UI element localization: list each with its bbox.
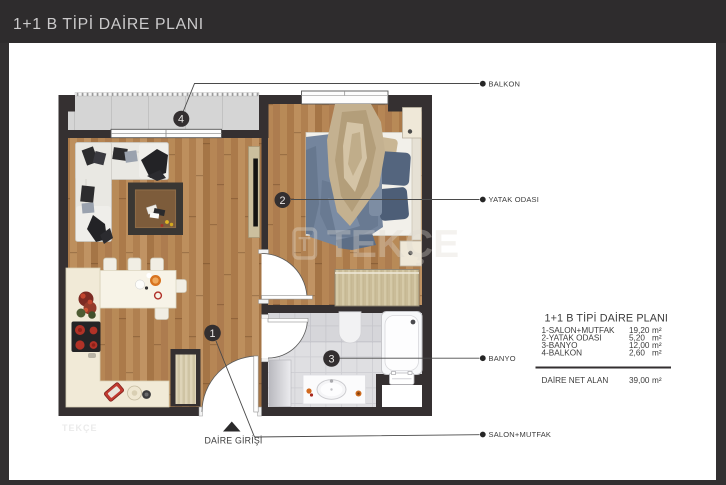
svg-text:T: T xyxy=(298,234,310,256)
svg-text:BALKON: BALKON xyxy=(489,80,521,89)
svg-text:1: 1 xyxy=(209,328,215,340)
svg-text:DAİRE NET ALAN: DAİRE NET ALAN xyxy=(542,375,609,385)
svg-text:DAİRE GİRİŞİ: DAİRE GİRİŞİ xyxy=(204,436,262,446)
svg-text:YATAK ODASI: YATAK ODASI xyxy=(489,195,540,204)
svg-text:1+1 B TİPİ DAİRE PLANI: 1+1 B TİPİ DAİRE PLANI xyxy=(545,312,669,325)
svg-text:m²: m² xyxy=(652,376,662,385)
svg-text:4: 4 xyxy=(178,114,184,126)
svg-text:BANYO: BANYO xyxy=(489,354,516,363)
svg-text:SALON+MUTFAK: SALON+MUTFAK xyxy=(489,430,552,439)
svg-text:4-BALKON: 4-BALKON xyxy=(542,349,583,358)
svg-text:3: 3 xyxy=(328,354,334,366)
svg-text:1+1 B TİPİ DAİRE PLANI: 1+1 B TİPİ DAİRE PLANI xyxy=(13,14,204,33)
svg-text:TEKÇE: TEKÇE xyxy=(62,423,98,433)
svg-text:TEKÇE: TEKÇE xyxy=(327,223,459,266)
svg-text:2,60: 2,60 xyxy=(629,349,645,358)
svg-text:2: 2 xyxy=(279,195,285,207)
svg-text:39,00: 39,00 xyxy=(629,376,650,385)
svg-text:m²: m² xyxy=(652,349,662,358)
